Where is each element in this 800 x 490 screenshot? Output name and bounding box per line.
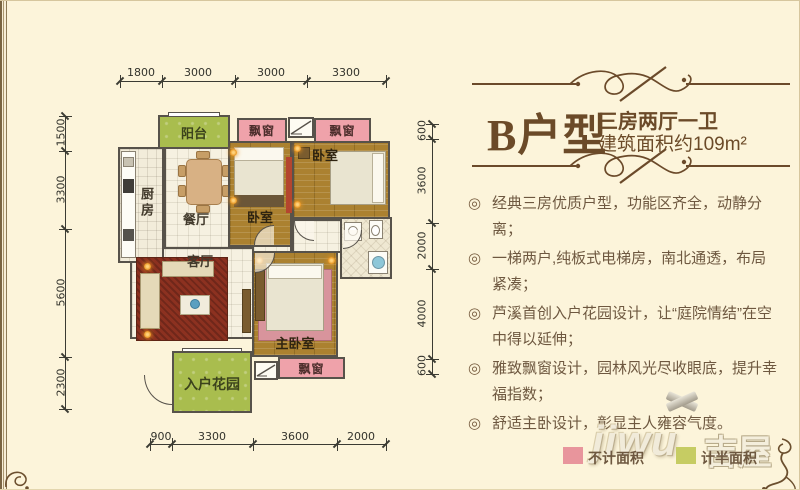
ceiling-light-icon: [294, 201, 301, 208]
bullet-icon: ◎: [468, 301, 481, 327]
dining-table: [186, 159, 222, 205]
dining-chair: [196, 151, 210, 159]
flyer-page: 阳台 厨房 餐厅 飘窗 飘窗 卧室: [0, 0, 800, 490]
entry-garden-label: 入户花园: [172, 374, 252, 394]
bedroom1-label: 卧室: [228, 207, 292, 226]
bay-window-bottom-label: 飘窗: [278, 360, 345, 377]
dim-value: 2300: [55, 353, 68, 413]
toilet-bowl: [371, 225, 380, 236]
dim-line-bottom: [150, 444, 386, 445]
bedroom1-pillow: [234, 147, 284, 161]
bullet-icon: ◎: [468, 191, 481, 217]
dim-value: 2000: [331, 430, 391, 443]
feature-text: 一梯两户,纯板式电梯房，南北通透，布局紧凑；: [492, 250, 766, 293]
ac-platform-icon: [290, 119, 312, 136]
ac-platform-icon: [256, 363, 276, 378]
living-label: 客厅: [150, 251, 250, 270]
feature-item: ◎芦溪首创入户花园设计，让“庭院情结”在空中得以延伸；: [468, 301, 780, 353]
corner-ornament-bottom-right: [752, 437, 798, 490]
master-wardrobe: [255, 269, 265, 321]
left-border-rule: [0, 1, 8, 490]
washing-machine-drum: [372, 256, 385, 269]
table-vase: [190, 299, 200, 309]
bedroom2-pillow: [372, 153, 384, 203]
dining-label: 餐厅: [164, 209, 228, 228]
ceiling-light-icon: [328, 257, 335, 264]
dim-value: 3000: [168, 66, 228, 79]
feature-text: 经典三房优质户型，功能区齐全，动静分离；: [492, 195, 762, 238]
balcony-window: [168, 112, 220, 117]
dining-chair: [178, 165, 186, 177]
tv-cabinet: [242, 289, 251, 333]
corner-ornament-bottom-left: [2, 461, 32, 490]
ceiling-light-icon: [230, 197, 237, 204]
kitchen-appliance: [123, 229, 134, 241]
ceiling-light-icon: [230, 149, 237, 156]
dim-value: 3300: [316, 66, 376, 79]
floor-lamp-icon: [144, 331, 151, 338]
flourish-ornament-top: [470, 65, 792, 103]
legend-label-not-counted: 不计面积: [588, 448, 644, 468]
dim-value: 3300: [182, 430, 242, 443]
bay-window-top-left-label: 飘窗: [237, 122, 287, 139]
dim-value: 1800: [111, 66, 171, 79]
dim-line-right: [432, 124, 433, 374]
dining-chair: [178, 185, 186, 197]
flourish-ornament-bottom: [470, 147, 792, 185]
kitchen-counter: [121, 151, 136, 258]
ac-platform-top: [288, 117, 314, 138]
dim-value: 5600: [55, 263, 68, 323]
legend-label-half-counted: 计半面积: [701, 448, 757, 468]
legend-swatch-half-counted: [676, 447, 696, 464]
balcony-label: 阳台: [158, 123, 230, 142]
feature-item: ◎经典三房优质户型，功能区齐全，动静分离；: [468, 191, 780, 243]
bedroom1-blanket: [234, 195, 284, 207]
dim-value: 1500: [55, 103, 68, 163]
sofa-main: [140, 273, 160, 329]
dim-value: 4000: [416, 284, 429, 344]
feature-text: 芦溪首创入户花园设计，让“庭院情结”在空中得以延伸；: [492, 305, 772, 348]
dim-value: 3300: [55, 160, 68, 220]
master-bedroom-label: 主卧室: [252, 333, 338, 352]
kitchen-label: 厨房: [140, 177, 156, 229]
bedroom2-label: 卧室: [300, 145, 350, 164]
dim-value: 3000: [241, 66, 301, 79]
bullet-icon: ◎: [468, 246, 481, 272]
feature-item: ◎一梯两户,纯板式电梯房，南北通透，布局紧凑；: [468, 246, 780, 298]
ac-platform-bottom: [254, 361, 278, 380]
dim-value: 3600: [416, 151, 429, 211]
master-pillow: [268, 265, 322, 279]
bullet-icon: ◎: [468, 411, 481, 437]
bullet-icon: ◎: [468, 356, 481, 382]
dim-value: 2000: [416, 216, 429, 276]
dim-value: 600: [416, 336, 429, 396]
kitchen-stove: [123, 179, 134, 193]
legend-swatch-not-counted: [563, 447, 583, 464]
bay-window-top-right-label: 飘窗: [314, 122, 371, 139]
entry-door-arc: [144, 375, 172, 405]
dim-value: 3600: [265, 430, 325, 443]
kitchen-sink: [123, 157, 134, 167]
